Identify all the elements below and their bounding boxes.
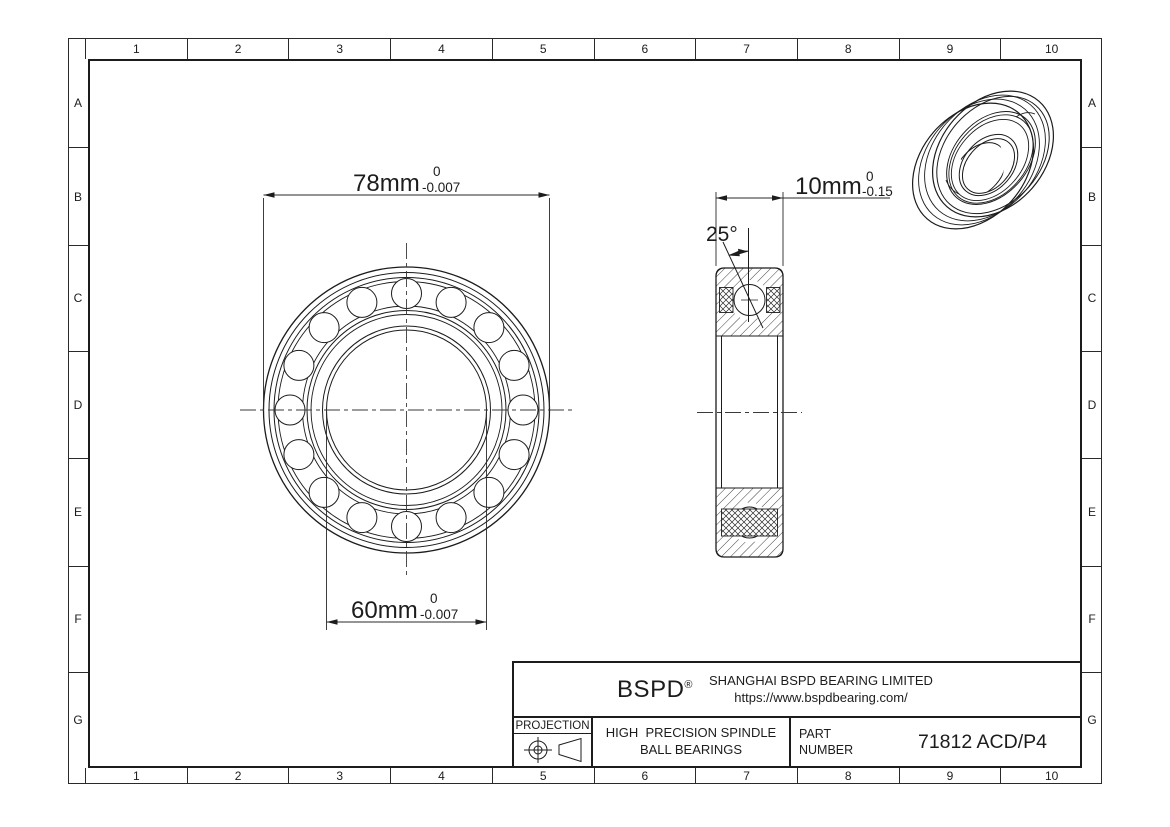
grid-row-label: A bbox=[1082, 59, 1102, 148]
grid-column-label: 10 bbox=[1000, 768, 1102, 784]
title-block-detail-row: PROJECTION HIGH PRECISION SPINDLE BALL B… bbox=[514, 718, 1080, 766]
projection-symbol bbox=[514, 734, 591, 766]
grid-column-label: 2 bbox=[187, 38, 289, 59]
title-block-company-row: BSPD® SHANGHAI BSPD BEARING LIMITED http… bbox=[514, 663, 1080, 718]
grid-column-label: 8 bbox=[797, 768, 899, 784]
grid-column-label: 1 bbox=[85, 38, 187, 59]
grid-band-right: ABCDEFG bbox=[1082, 59, 1102, 768]
grid-row-label: E bbox=[1082, 459, 1102, 567]
grid-column-label: 6 bbox=[594, 768, 696, 784]
product-title-cell: HIGH PRECISION SPINDLE BALL BEARINGS bbox=[593, 718, 791, 766]
grid-row-label: C bbox=[68, 246, 88, 351]
grid-row-label: A bbox=[68, 59, 88, 148]
grid-row-label: C bbox=[1082, 246, 1102, 351]
grid-column-label: 6 bbox=[594, 38, 696, 59]
grid-column-label: 4 bbox=[390, 38, 492, 59]
first-angle-projection-icon bbox=[521, 736, 585, 764]
product-title-line1: HIGH PRECISION SPINDLE bbox=[593, 725, 789, 742]
part-number-cell: PART NUMBER 71812 ACD/P4 bbox=[791, 718, 1080, 766]
grid-band-bottom: 12345678910 bbox=[85, 768, 1102, 784]
grid-band-top: 12345678910 bbox=[85, 38, 1102, 59]
grid-column-label: 1 bbox=[85, 768, 187, 784]
grid-row-label: B bbox=[68, 148, 88, 246]
company-name: SHANGHAI BSPD BEARING LIMITED bbox=[709, 673, 933, 689]
grid-column-label: 5 bbox=[492, 768, 594, 784]
grid-row-label: G bbox=[68, 673, 88, 768]
part-number-label: PART NUMBER bbox=[791, 726, 885, 759]
company-info: SHANGHAI BSPD BEARING LIMITED https://ww… bbox=[709, 673, 933, 706]
grid-column-label: 5 bbox=[492, 38, 594, 59]
grid-column-label: 8 bbox=[797, 38, 899, 59]
projection-label: PROJECTION bbox=[514, 718, 591, 734]
grid-column-label: 3 bbox=[288, 768, 390, 784]
grid-row-label: B bbox=[1082, 148, 1102, 246]
product-title-line2: BALL BEARINGS bbox=[593, 742, 789, 759]
grid-column-label: 7 bbox=[695, 38, 797, 59]
grid-row-label: F bbox=[1082, 567, 1102, 673]
registered-mark: ® bbox=[684, 679, 693, 691]
grid-column-label: 4 bbox=[390, 768, 492, 784]
company-logo: BSPD® bbox=[617, 676, 693, 704]
grid-column-label: 10 bbox=[1000, 38, 1102, 59]
drawing-sheet: 78mm 0 -0.007 60mm 0 -0.007 bbox=[0, 0, 1170, 827]
company-logo-text: BSPD bbox=[617, 676, 684, 703]
grid-column-label: 2 bbox=[187, 768, 289, 784]
grid-column-label: 9 bbox=[899, 768, 1001, 784]
grid-row-label: G bbox=[1082, 673, 1102, 768]
grid-row-label: D bbox=[68, 352, 88, 459]
company-website: https://www.bspdbearing.com/ bbox=[709, 690, 933, 706]
grid-column-label: 9 bbox=[899, 38, 1001, 59]
grid-column-label: 3 bbox=[288, 38, 390, 59]
grid-row-label: F bbox=[68, 567, 88, 673]
title-block: BSPD® SHANGHAI BSPD BEARING LIMITED http… bbox=[512, 661, 1082, 768]
grid-row-label: D bbox=[1082, 352, 1102, 459]
grid-band-left: ABCDEFG bbox=[68, 59, 88, 768]
grid-column-label: 7 bbox=[695, 768, 797, 784]
grid-row-label: E bbox=[68, 459, 88, 567]
part-number-value: 71812 ACD/P4 bbox=[885, 731, 1080, 754]
projection-cell: PROJECTION bbox=[514, 718, 593, 766]
